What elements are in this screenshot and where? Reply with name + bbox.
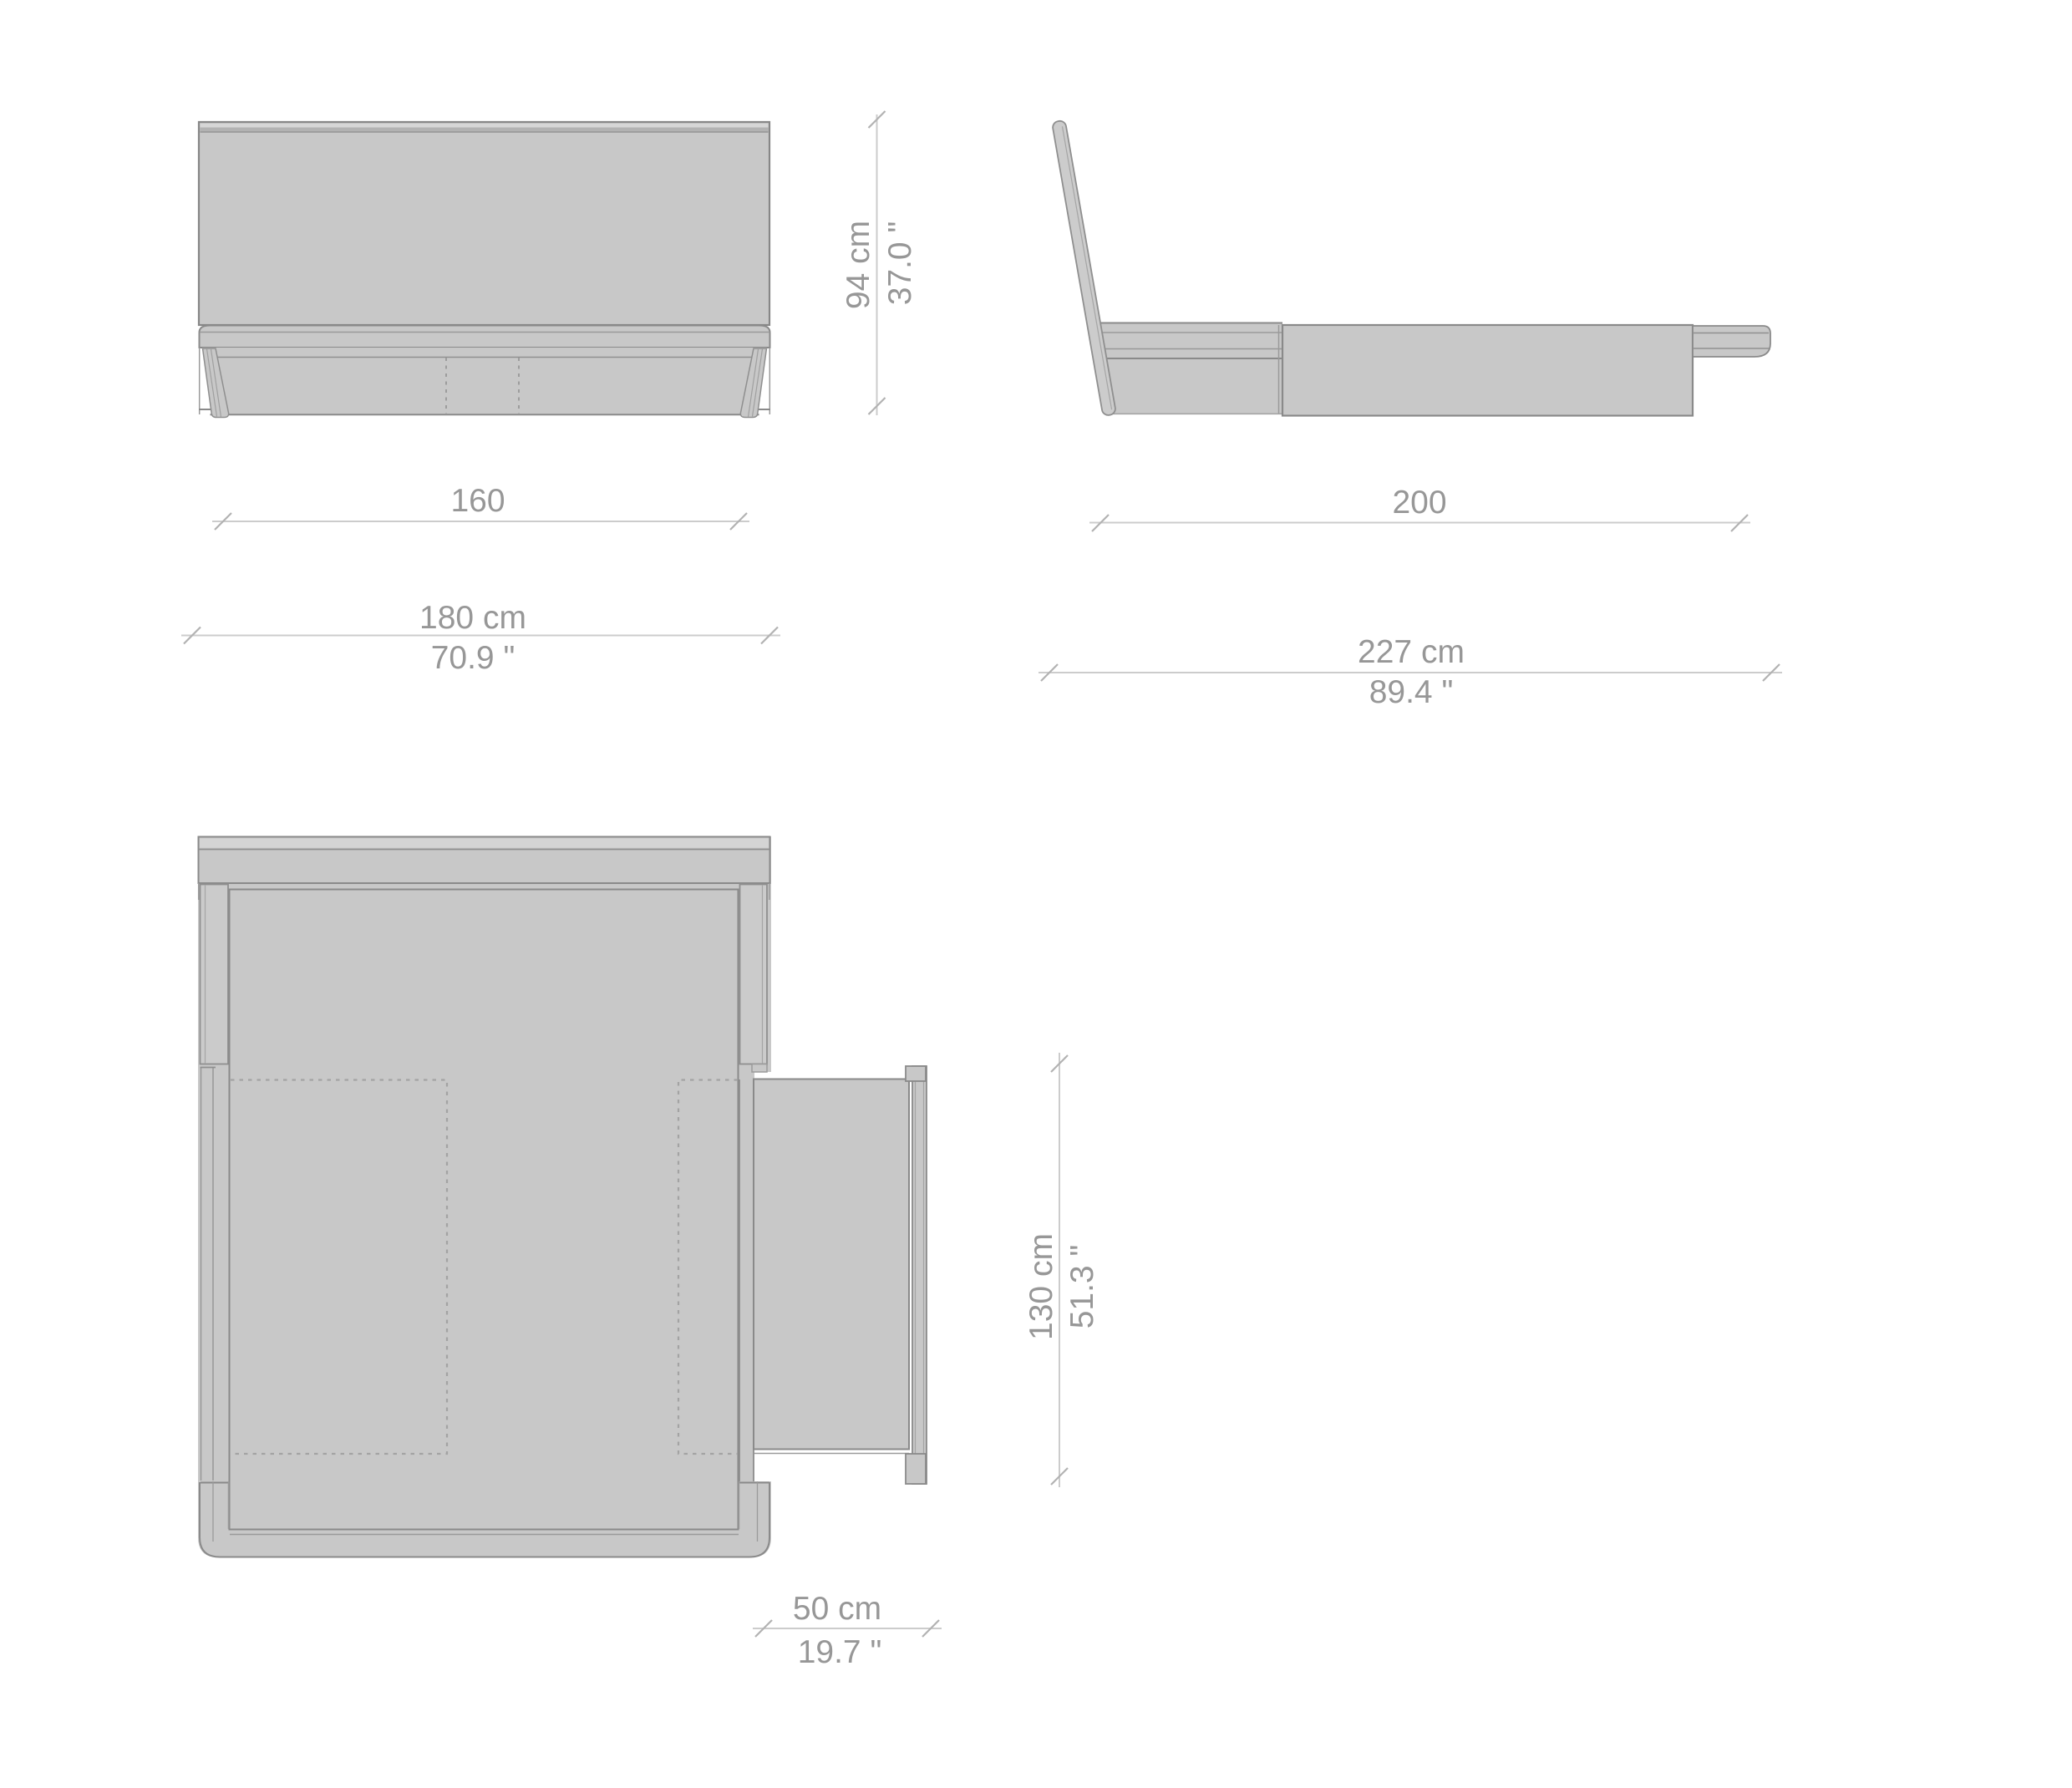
svg-text:51.3 ": 51.3 ": [1064, 1245, 1100, 1329]
svg-text:70.9 ": 70.9 ": [431, 640, 515, 676]
svg-text:37.0 ": 37.0 ": [882, 221, 918, 306]
svg-text:160: 160: [450, 483, 505, 519]
svg-text:200: 200: [1392, 485, 1446, 521]
svg-text:19.7 ": 19.7 ": [798, 1634, 882, 1670]
svg-text:89.4 ": 89.4 ": [1369, 674, 1454, 710]
svg-text:130 cm: 130 cm: [1023, 1233, 1059, 1340]
svg-text:50 cm: 50 cm: [793, 1591, 881, 1627]
svg-text:94 cm: 94 cm: [840, 221, 876, 309]
svg-text:227 cm: 227 cm: [1358, 634, 1465, 670]
svg-text:180 cm: 180 cm: [419, 600, 526, 636]
